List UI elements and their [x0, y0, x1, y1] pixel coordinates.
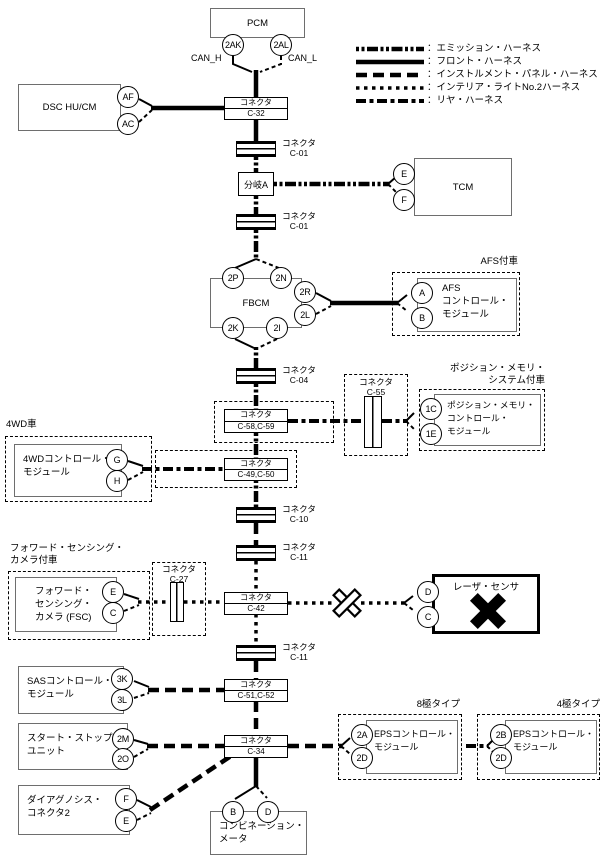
connector-c10-symbol [236, 507, 276, 523]
connector-c51-c52: コネクタ C-51,C-52 [224, 679, 288, 702]
branch-dsc-af [139, 99, 152, 106]
legend-label-emission: ：エミッション・ハーネス [427, 43, 541, 55]
connector-c11b-label: コネクタC-11 [280, 642, 318, 662]
can-h-label: CAN_H [191, 52, 222, 64]
eps4-label-1: EPSコントロール・ [513, 728, 596, 741]
legend-label-instrument: ：インストルメント・パネル・ハーネス [427, 69, 598, 81]
branch-laser-d [404, 596, 413, 603]
branch-startstop-2o [134, 749, 148, 757]
connector-c01a-symbol [236, 141, 276, 157]
pin-diag-f: F [115, 788, 137, 810]
connector-c04-symbol [236, 368, 276, 384]
sas-label-2: モジュール [27, 688, 123, 701]
connector-c42: コネクタ C-42 [224, 592, 288, 615]
afs-module: AFS コントロール・ モジュール [417, 278, 517, 332]
connector-c34-id: C-34 [225, 747, 287, 757]
connector-c34-word: コネクタ [225, 736, 287, 747]
connector-c32-id: C-32 [225, 109, 287, 119]
startstop-module: スタート・ストップ・ ユニット [18, 723, 128, 770]
connector-c27-label: コネクタC-27 [152, 564, 206, 584]
branch-sas-3k [134, 681, 149, 687]
pin-fbcm-2l: 2L [294, 304, 316, 326]
can-wiring-diagram: ：エミッション・ハーネス ：フロント・ハーネス ：インストルメント・パネル・ハー… [0, 0, 601, 857]
branch-fbcm-2p [235, 259, 256, 268]
group-label-eps4: 4極タイプ [477, 699, 600, 711]
pin-eps8-2a: 2A [351, 724, 373, 746]
pin-startstop-2o: 2O [112, 748, 134, 770]
sas-label-1: SASコントロール・ [27, 675, 123, 688]
branch-meter-d [256, 786, 267, 798]
connector-c32: コネクタ C-32 [224, 97, 288, 120]
posmem-label-3: モジュール [447, 425, 540, 438]
branch-tcm-f [388, 184, 396, 192]
branch-startstop-2m [134, 740, 148, 744]
diag-connector2-module: ダイアグノシス・ コネクタ2 [18, 785, 130, 835]
awd-module: 4WDコントロール・ モジュール [14, 444, 122, 497]
branch-fbcm-2l [316, 306, 331, 314]
pin-tcm-e: E [393, 163, 415, 185]
diag-label-2: コネクタ2 [27, 807, 129, 820]
pin-afs-b: B [411, 307, 433, 329]
branch-a-box: 分岐A [238, 172, 274, 196]
pin-startstop-2m: 2M [112, 728, 134, 750]
branch-fbcm-2n [256, 259, 279, 268]
pin-sas-3l: 3L [111, 689, 133, 711]
posmem-module: ポジション・メモリ・ コントロール・ モジュール [434, 394, 541, 446]
pin-eps4-2d: 2D [490, 747, 512, 769]
pin-laser-c: C [417, 606, 439, 628]
branch-diag-e [137, 813, 151, 820]
pin-fbcm-2r: 2R [294, 281, 316, 303]
pin-fbcm-2i: 2I [266, 317, 288, 339]
connector-c11a-label: コネクタC-11 [280, 542, 318, 562]
group-label-eps8: 8極タイプ [338, 699, 460, 711]
branch-meter-b [235, 786, 256, 799]
group-label-fsc-1: フォワード・センシング・ [10, 543, 124, 555]
pin-fbcm-2p: 2P [222, 267, 244, 289]
fsc-module: フォワード・ センシング・ カメラ (FSC) [15, 577, 117, 632]
legend-label-interior: ：インテリア・ライトNo.2ハーネス [427, 82, 580, 94]
eps4-module: EPSコントロール・ モジュール [505, 720, 597, 774]
pin-awd-h: H [106, 470, 128, 492]
branch-sas-3l [134, 693, 149, 698]
fbcm-label: FBCM [243, 297, 270, 310]
pcm-label: PCM [247, 17, 268, 30]
group-label-awd: 4WD車 [6, 419, 37, 431]
pin-pcm-2ak: 2AK [222, 34, 244, 56]
group-label-afs: AFS付車 [392, 256, 518, 268]
connector-c4950-word: コネクタ [225, 459, 287, 470]
connector-c5859-id: C-58,C-59 [225, 422, 287, 433]
eps8-label-2: モジュール [374, 741, 457, 754]
pin-dsc-ac: AC [117, 113, 139, 135]
connector-c55-symbol [364, 396, 382, 448]
branch-dsc-ac [139, 110, 152, 122]
connector-c32-word: コネクタ [225, 98, 287, 109]
branch-diag-f [137, 800, 151, 807]
connector-c10-label: コネクタC-10 [280, 504, 318, 524]
pin-fbcm-2k: 2K [222, 317, 244, 339]
branch-fbcm-2i [258, 339, 277, 348]
connector-c27-symbol [170, 582, 184, 622]
connector-c11b-symbol [236, 645, 276, 661]
sas-module: SASコントロール・ モジュール [18, 666, 124, 714]
afs-label-2: コントロール・ [442, 295, 516, 308]
pin-meter-d: D [257, 801, 279, 823]
connector-c5152-word: コネクタ [225, 680, 287, 691]
connector-c34: コネクタ C-34 [224, 735, 288, 758]
meter-label-2: メータ [219, 833, 306, 846]
connector-c04-label: コネクタC-04 [280, 365, 318, 385]
laser-deleted-x-icon [464, 587, 512, 635]
pin-dsc-af: AF [117, 86, 139, 108]
connector-c58-c59: コネクタ C-58,C-59 [224, 409, 288, 433]
dsc-module: DSC HU/CM [18, 84, 121, 131]
afs-label-3: モジュール [442, 308, 516, 321]
pin-posmem-1c: 1C [420, 398, 442, 420]
branch-fbcm-2r [316, 293, 331, 301]
branch-pcm-2ak [233, 56, 252, 72]
pin-sas-3k: 3K [111, 668, 133, 690]
connector-c49-c50: コネクタ C-49,C-50 [224, 458, 288, 481]
pin-meter-b: B [222, 801, 244, 823]
connector-c55-label: コネクタC-55 [344, 377, 408, 397]
diag-label-1: ダイアグノシス・ [27, 794, 129, 807]
connector-c5859-word: コネクタ [225, 410, 287, 422]
posmem-label-1: ポジション・メモリ・ [447, 399, 540, 412]
eps8-label-1: EPSコントロール・ [374, 728, 457, 741]
pin-fsc-e: E [102, 581, 124, 603]
pin-awd-g: G [106, 449, 128, 471]
wire-cut-x-icon [334, 590, 361, 617]
pin-fsc-c: C [102, 602, 124, 624]
branch-fbcm-2k [235, 339, 254, 348]
pcm-module: PCM [210, 8, 305, 38]
connector-c01a-label: コネクタC-01 [280, 138, 318, 158]
tcm-module: TCM [414, 158, 512, 216]
connector-c42-word: コネクタ [225, 593, 287, 604]
branch-pcm-2al [260, 56, 281, 72]
pin-eps4-2b: 2B [490, 724, 512, 746]
posmem-label-2: コントロール・ [447, 412, 540, 425]
pin-posmem-1e: 1E [420, 423, 442, 445]
dsc-label: DSC HU/CM [43, 101, 97, 114]
pin-laser-d: D [417, 581, 439, 603]
group-label-fsc-2: カメラ付車 [10, 555, 58, 567]
can-l-label: CAN_L [288, 52, 317, 64]
pin-diag-e: E [115, 810, 137, 832]
pin-tcm-f: F [393, 189, 415, 211]
wire-diag-c34 [150, 756, 231, 810]
group-label-posmem-1: ポジション・メモリ・ [419, 363, 545, 375]
group-label-posmem-2: システム付車 [419, 375, 545, 387]
eps4-label-2: モジュール [513, 741, 596, 754]
connector-c11a-symbol [236, 545, 276, 561]
pin-fbcm-2n: 2N [270, 267, 292, 289]
legend-label-front: ：フロント・ハーネス [427, 56, 522, 68]
tcm-label: TCM [453, 181, 474, 194]
connector-c01b-label: コネクタC-01 [280, 211, 318, 231]
branch-laser-c [404, 603, 413, 610]
connector-c5152-id: C-51,C-52 [225, 691, 287, 701]
eps8-module: EPSコントロール・ モジュール [366, 720, 458, 774]
connector-c4950-id: C-49,C-50 [225, 470, 287, 480]
pin-eps8-2d: 2D [351, 747, 373, 769]
legend-label-rear: ：リヤ・ハーネス [427, 95, 503, 107]
connector-c42-id: C-42 [225, 604, 287, 614]
connector-c01b-symbol [236, 214, 276, 230]
afs-label-1: AFS [442, 282, 516, 295]
pin-afs-a: A [411, 282, 433, 304]
